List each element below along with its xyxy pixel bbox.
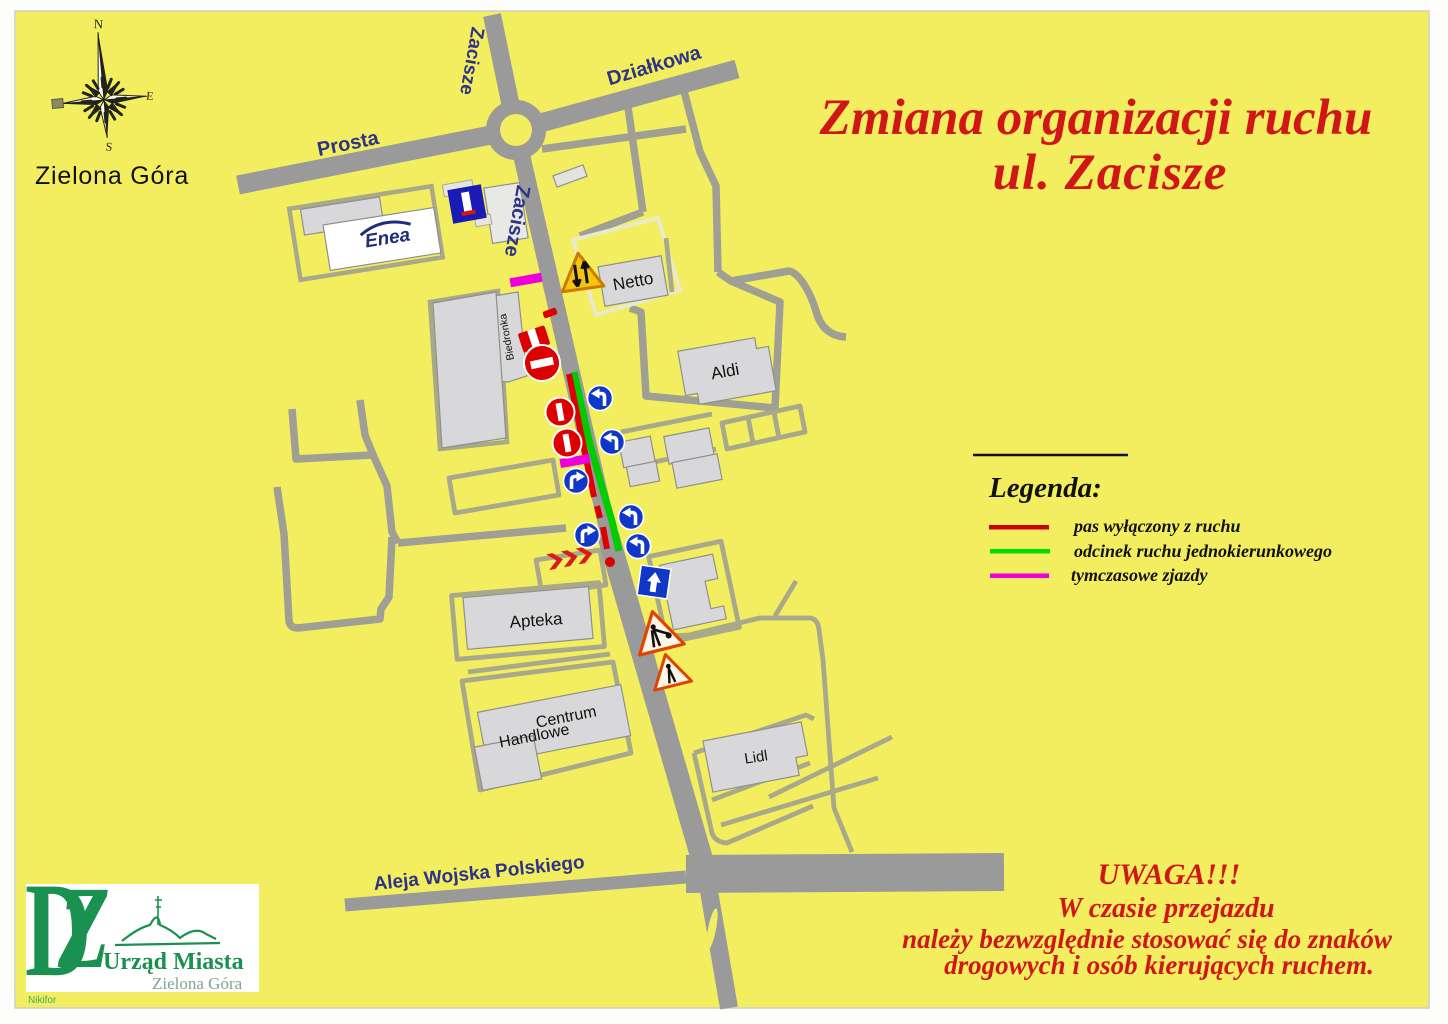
svg-text:Urząd Miasta: Urząd Miasta — [103, 949, 244, 975]
svg-text:Lidl: Lidl — [743, 747, 769, 767]
svg-text:Zielona Góra: Zielona Góra — [35, 162, 189, 190]
svg-text:Apteka: Apteka — [509, 609, 564, 632]
svg-text:drogowych i osób kierujących r: drogowych i osób kierujących ruchem. — [944, 950, 1374, 980]
svg-text:Zielona Góra: Zielona Góra — [152, 974, 243, 993]
svg-text:N: N — [93, 16, 104, 32]
svg-text:S: S — [105, 139, 113, 154]
svg-text:Z: Z — [57, 863, 110, 994]
svg-text:tymczasowe zjazdy: tymczasowe zjazdy — [1071, 565, 1208, 585]
svg-text:Legenda:: Legenda: — [988, 472, 1102, 504]
svg-text:odcinek ruchu jednokierunkoweg: odcinek ruchu jednokierunkowego — [1074, 541, 1332, 561]
svg-text:Nikifor: Nikifor — [28, 995, 57, 1006]
svg-text:UWAGA!!!: UWAGA!!! — [1098, 858, 1241, 891]
svg-text:W czasie przejazdu: W czasie przejazdu — [1057, 893, 1274, 924]
svg-text:ul. Zacisze: ul. Zacisze — [993, 145, 1228, 201]
svg-text:Zmiana organizacji ruchu: Zmiana organizacji ruchu — [819, 90, 1373, 146]
svg-text:pas wyłączony z ruchu: pas wyłączony z ruchu — [1072, 516, 1241, 536]
